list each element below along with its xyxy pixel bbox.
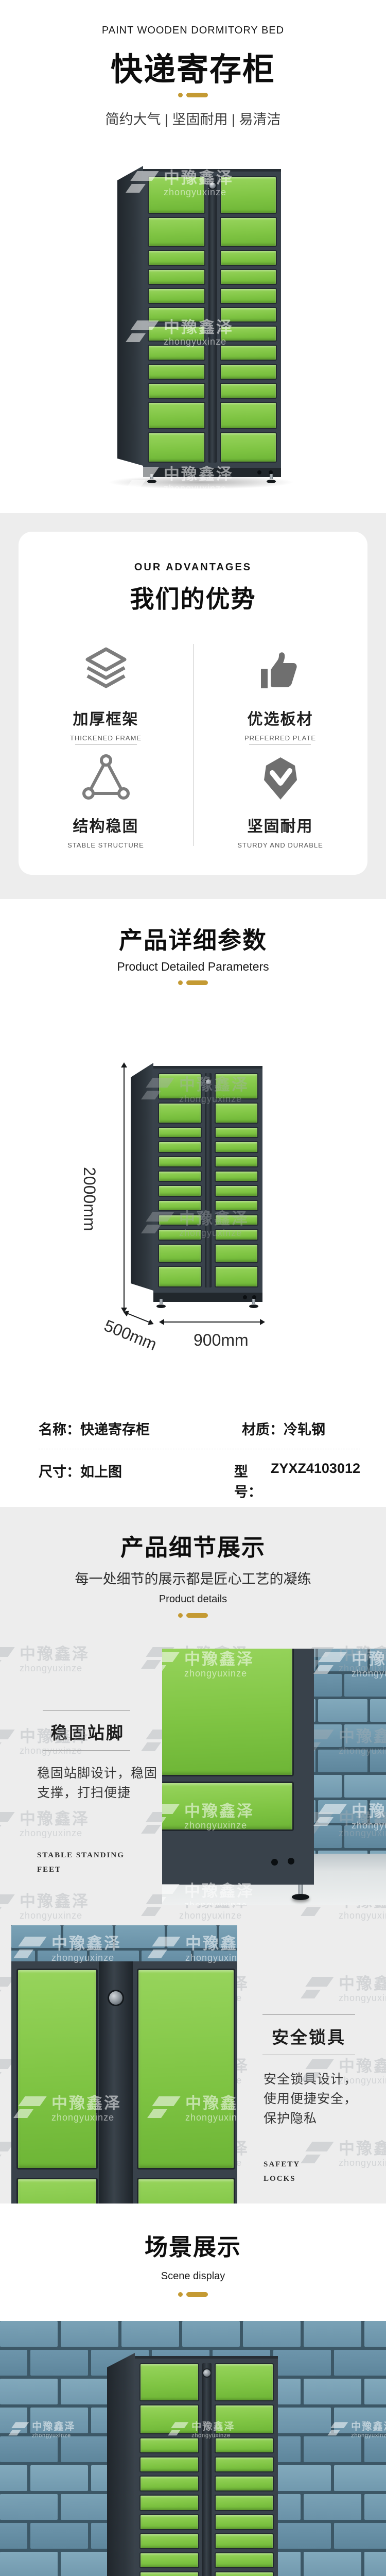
spec-label: 名称：: [39, 1418, 80, 1438]
brick: [364, 2494, 386, 2520]
brick: [0, 2523, 27, 2549]
locker-door: [158, 1244, 202, 1263]
lock-icon: [209, 182, 216, 189]
width-dimension-label: 900mm: [194, 1331, 249, 1350]
brick: [344, 1724, 386, 1747]
locker-side-panel: [117, 166, 143, 466]
locker-door: [220, 432, 277, 463]
brick: [273, 2350, 331, 2376]
locker-door: [215, 1200, 258, 1211]
locker-front: [153, 1066, 262, 1294]
locker-door: [148, 402, 205, 429]
brick: [30, 2350, 88, 2376]
locker-door: [215, 1244, 258, 1263]
locker-door: [148, 326, 205, 342]
locker-door: [215, 1127, 258, 1138]
locker-foot: [266, 476, 277, 483]
locker-door: [139, 2533, 199, 2549]
locker-door: [158, 1185, 202, 1196]
vent-hole: [271, 1859, 278, 1866]
scene-subtitle-en: Scene display: [0, 2270, 386, 2282]
locker-door: [158, 1171, 202, 1182]
brick: [318, 1800, 367, 1823]
advantage-item-stable-structure: 结构稳固 STABLE STRUCTURE: [19, 753, 193, 849]
detail-divider: [262, 2014, 355, 2015]
advantage-label-en: PREFERRED PLATE: [193, 734, 367, 742]
locker-door: [148, 217, 205, 247]
locker-door: [220, 217, 277, 247]
locker-door-column: [139, 2363, 199, 2576]
brick: [30, 2408, 88, 2433]
brick-wall: [11, 1925, 237, 1965]
locker-door: [220, 383, 277, 399]
locker-door: [215, 1229, 258, 1240]
brick: [219, 1925, 237, 1948]
brick: [318, 1699, 367, 1722]
hero-subtitle: 简约大气 | 坚固耐用 | 易清洁: [0, 108, 386, 128]
locker-center-stile: [208, 176, 217, 463]
locker-door-column: [215, 2363, 274, 2576]
locker-door: [162, 1649, 294, 1776]
brick: [273, 2523, 331, 2549]
watermark-logo-icon: [0, 1811, 14, 1837]
brick: [11, 1925, 61, 1948]
watermark-logo-icon: [0, 1893, 14, 1919]
brick: [0, 2321, 58, 2347]
watermark: 中豫鑫泽zhongyuxinze: [0, 1811, 90, 1839]
locker-door: [16, 2178, 98, 2204]
brick: [334, 2350, 386, 2376]
advantage-item-thickened-frame: 加厚框架 THICKENED FRAME: [19, 646, 193, 742]
spec-name: 名称： 快递寄存柜: [39, 1418, 242, 1438]
locker-door: [215, 2514, 274, 2530]
locker-door: [139, 2552, 199, 2568]
brick: [344, 1825, 386, 1848]
advantage-label-cn: 坚固耐用: [193, 814, 367, 836]
locker-door-column: [158, 1073, 202, 1287]
locker-foot: [146, 476, 157, 483]
locker-door: [148, 432, 205, 463]
detail-title: 安全锁具: [272, 2024, 346, 2048]
advantage-item-preferred-plate: 优选板材 PREFERRED PLATE: [193, 646, 367, 742]
brick: [370, 1750, 386, 1772]
locker-front: [135, 2356, 278, 2576]
brick: [0, 2350, 27, 2376]
locker-corner-fragment: [162, 1649, 314, 1885]
locker-door: [215, 1073, 258, 1099]
locker-door: [215, 1103, 258, 1124]
advantages-title: 我们的优势: [19, 579, 367, 615]
locker-side-panel: [131, 1063, 153, 1291]
brick: [0, 2408, 27, 2433]
adjustable-foot: [292, 1885, 309, 1900]
detail-divider: [43, 1750, 130, 1751]
locker-door: [137, 1969, 235, 2170]
brick: [304, 2552, 361, 2576]
watermark: 中豫鑫泽zhongyuxinze: [0, 1646, 90, 1674]
locker-door: [215, 2363, 274, 2401]
watermark-logo-icon: [0, 1646, 14, 1672]
locker-door: [158, 1200, 202, 1211]
spec-table: 名称： 快递寄存柜 材质： 冷轧钢 尺寸： 如上图 型号： ZYXZ410301…: [39, 1418, 360, 1501]
locker-door-column: [148, 176, 205, 463]
locker-door-column: [215, 1073, 258, 1287]
brick: [364, 2379, 386, 2404]
brick: [0, 2494, 58, 2520]
layers-icon: [81, 646, 131, 696]
brick: [364, 2321, 386, 2347]
scene-locker-image: [107, 2353, 278, 2576]
locker-door: [137, 2178, 235, 2204]
detail-title: 稳固站脚: [50, 1719, 125, 1744]
locker-door: [158, 1103, 202, 1124]
locker-side-panel: [107, 2353, 135, 2576]
locker-door: [16, 1969, 98, 2170]
height-dimension-arrow: [124, 1064, 125, 1311]
brick: [334, 2465, 386, 2491]
locker-door: [148, 364, 205, 380]
locker-door: [148, 176, 205, 214]
brick: [304, 2494, 361, 2520]
locker-door: [139, 2514, 199, 2530]
brick: [182, 2321, 240, 2347]
locker-door: [148, 383, 205, 399]
detail-desc: 稳固站脚设计，稳固支撑，打扫便捷: [37, 1764, 161, 1803]
spec-row: 名称： 快递寄存柜 材质： 冷轧钢: [39, 1418, 360, 1449]
advantage-label-cn: 优选板材: [193, 706, 367, 729]
locker-door: [139, 2571, 199, 2576]
locker-door: [215, 2476, 274, 2492]
height-dimension-label: 2000mm: [80, 1167, 99, 1231]
brick: [0, 2465, 27, 2491]
advantage-label-en: STABLE STRUCTURE: [19, 841, 193, 849]
brick: [334, 2523, 386, 2549]
locker-plinth: [153, 1293, 262, 1302]
spec-value: 冷轧钢: [284, 1418, 325, 1438]
spec-label: 尺寸：: [39, 1461, 80, 1501]
locker-foot: [248, 1301, 259, 1308]
locker-door: [215, 2552, 274, 2568]
locker-door: [139, 2363, 199, 2401]
spec-label: 型号：: [234, 1461, 271, 1501]
brick: [61, 2321, 118, 2347]
spec-value: ZYXZ4103012: [271, 1461, 360, 1501]
locker-door: [215, 1214, 258, 1226]
advantages-card: OUR ADVANTAGES 我们的优势 加厚框架 THICKENED FRAM…: [19, 532, 367, 875]
locker-door: [162, 1782, 294, 1831]
divider-horizontal: [75, 744, 137, 744]
detail-caption-en: STABLE STANDING FEET: [37, 1848, 135, 1877]
locker-door: [215, 2571, 274, 2576]
gold-divider: [178, 93, 208, 97]
scene-title: 场景展示: [0, 2228, 386, 2262]
hero-kicker: PAINT WOODEN DORMITORY BED: [0, 25, 386, 37]
locker-door-column: [220, 176, 277, 463]
locker-door: [148, 307, 205, 323]
locker-door: [215, 1156, 258, 1167]
detail-divider: [262, 2055, 355, 2055]
brick: [30, 2465, 88, 2491]
brick: [304, 2379, 361, 2404]
locker-door: [158, 1156, 202, 1167]
locker-door: [220, 250, 277, 266]
brick: [344, 1674, 386, 1697]
vent-hole: [288, 1858, 294, 1865]
locker-door: [148, 345, 205, 361]
locker-door: [158, 1266, 202, 1287]
parameters-subtitle-en: Product Detailed Parameters: [0, 960, 386, 974]
brick: [273, 2408, 331, 2433]
triangle-icon: [81, 753, 131, 803]
locker-door: [158, 1229, 202, 1240]
brick: [318, 1750, 367, 1772]
locker-door: [220, 402, 277, 429]
spec-model: 型号： ZYXZ4103012: [234, 1461, 360, 1501]
brick: [304, 2436, 361, 2462]
locker-door: [215, 1171, 258, 1182]
locker-door: [215, 2533, 274, 2549]
locker-door: [139, 2437, 199, 2453]
locker-door: [215, 1141, 258, 1153]
brick: [0, 2379, 58, 2404]
locker-door: [139, 2476, 199, 2492]
locker-door: [220, 176, 277, 214]
locker-door: [215, 2437, 274, 2453]
locker-door: [215, 1266, 258, 1287]
divider-horizontal: [249, 744, 311, 744]
spec-value: 如上图: [80, 1461, 122, 1501]
parameters-section: 产品详细参数 Product Detailed Parameters 2000m…: [0, 899, 386, 1507]
scene-header-section: 场景展示 Scene display: [0, 2204, 386, 2321]
brick: [273, 2465, 331, 2491]
locker-door: [158, 1214, 202, 1226]
detail-caption-en: SAFETY LOCKS: [264, 2157, 320, 2186]
spec-material: 材质： 冷轧钢: [242, 1418, 325, 1438]
product-locker-image: [117, 166, 281, 481]
locker-door: [220, 364, 277, 380]
vent-hole: [257, 470, 261, 474]
brick: [364, 2552, 386, 2576]
locker-door: [220, 269, 277, 285]
locker-door: [215, 2495, 274, 2511]
locker-door: [158, 1073, 202, 1099]
locker-door: [139, 2456, 199, 2472]
watermark-logo-icon: [0, 1728, 14, 1754]
locker-door: [220, 345, 277, 361]
lock-icon: [109, 1991, 122, 2005]
locker-door: [220, 307, 277, 323]
locker-door: [158, 1127, 202, 1138]
depth-dimension-arrow: [125, 1312, 153, 1324]
brick: [364, 2436, 386, 2462]
lock-icon: [206, 1079, 211, 1084]
detail-image-standing-feet: 中豫鑫泽zhongyuxinze中豫鑫泽zhongyuxinze中豫鑫泽zhon…: [162, 1649, 386, 1905]
details-subtitle-en: Product details: [0, 1594, 386, 1605]
brick: [167, 1925, 217, 1948]
scene-image-section: 中豫鑫泽zhongyuxinze中豫鑫泽zhongyuxinze中豫鑫泽zhon…: [0, 2321, 386, 2576]
details-title: 产品细节展示: [0, 1529, 386, 1562]
locker-door: [220, 326, 277, 342]
brick: [334, 2408, 386, 2433]
spec-size: 尺寸： 如上图: [39, 1461, 234, 1501]
width-dimension-arrow: [161, 1321, 264, 1323]
gold-divider: [178, 2292, 208, 2297]
brick: [0, 2552, 58, 2576]
locker-door: [148, 250, 205, 266]
locker-door: [158, 1141, 202, 1153]
watermark-logo-icon: [304, 1976, 334, 2002]
locker-door: [139, 2404, 199, 2434]
locker-door: [148, 288, 205, 304]
detail-desc: 安全锁具设计，使用便捷安全，保护隐私: [264, 2070, 366, 2128]
brick: [115, 1925, 165, 1948]
advantage-label-en: THICKENED FRAME: [19, 734, 193, 742]
locker-front: [143, 169, 281, 469]
locker-door: [139, 2495, 199, 2511]
spec-label: 材质：: [242, 1418, 284, 1438]
locker-center-stile: [202, 2363, 212, 2576]
watermark: 中豫鑫泽zhongyuxinze: [304, 1976, 386, 2004]
shield-icon: [256, 753, 305, 803]
locker-center-stile: [205, 1073, 212, 1287]
advantage-label-cn: 结构稳固: [19, 814, 193, 836]
thumbs-up-icon: [256, 646, 305, 696]
vent-hole: [243, 1295, 247, 1299]
brick: [121, 2321, 179, 2347]
locker-foot: [155, 1301, 167, 1308]
watermark: 中豫鑫泽zhongyuxinze: [0, 1893, 90, 1921]
locker-door: [215, 2456, 274, 2472]
gold-divider: [178, 1613, 208, 1618]
advantages-section: OUR ADVANTAGES 我们的优势 加厚框架 THICKENED FRAM…: [0, 513, 386, 899]
brick: [0, 2436, 58, 2462]
locker-front-fragment: [11, 1961, 237, 2204]
brick: [344, 1775, 386, 1798]
locker-door: [215, 1185, 258, 1196]
dimension-locker-image: [131, 1063, 262, 1306]
detail-image-safety-locks: 中豫鑫泽zhongyuxinze中豫鑫泽zhongyuxinze中豫鑫泽zhon…: [11, 1925, 237, 2204]
brick: [370, 1649, 386, 1671]
locker-door: [220, 288, 277, 304]
advantage-label-en: STURDY AND DURABLE: [193, 841, 367, 849]
brick: [304, 2321, 361, 2347]
locker-door: [148, 269, 205, 285]
spec-row: 尺寸： 如上图 型号： ZYXZ4103012: [39, 1449, 360, 1501]
parameters-title: 产品详细参数: [0, 922, 386, 956]
advantages-kicker: OUR ADVANTAGES: [19, 562, 367, 573]
hero-section: PAINT WOODEN DORMITORY BED 快递寄存柜 简约大气 | …: [0, 0, 386, 513]
spec-value: 快递寄存柜: [80, 1418, 150, 1438]
locker-plinth: [143, 468, 281, 477]
brick: [243, 2321, 301, 2347]
advantage-label-cn: 加厚框架: [19, 706, 193, 729]
detail-divider: [43, 1710, 130, 1711]
gold-divider: [178, 980, 208, 985]
brick: [370, 1800, 386, 1823]
advantage-item-sturdy-durable: 坚固耐用 STURDY AND DURABLE: [193, 753, 367, 849]
brick: [318, 1649, 367, 1671]
locker-door: [215, 2404, 274, 2434]
brick: [370, 1699, 386, 1722]
page-title: 快递寄存柜: [0, 43, 386, 90]
lock-icon: [203, 2369, 210, 2377]
brick: [63, 1925, 113, 1948]
details-section: 产品细节展示 每一处细节的展示都是匠心工艺的凝练 Product details…: [0, 1507, 386, 2204]
details-subtitle: 每一处细节的展示都是匠心工艺的凝练: [0, 1568, 386, 1588]
brick: [30, 2523, 88, 2549]
